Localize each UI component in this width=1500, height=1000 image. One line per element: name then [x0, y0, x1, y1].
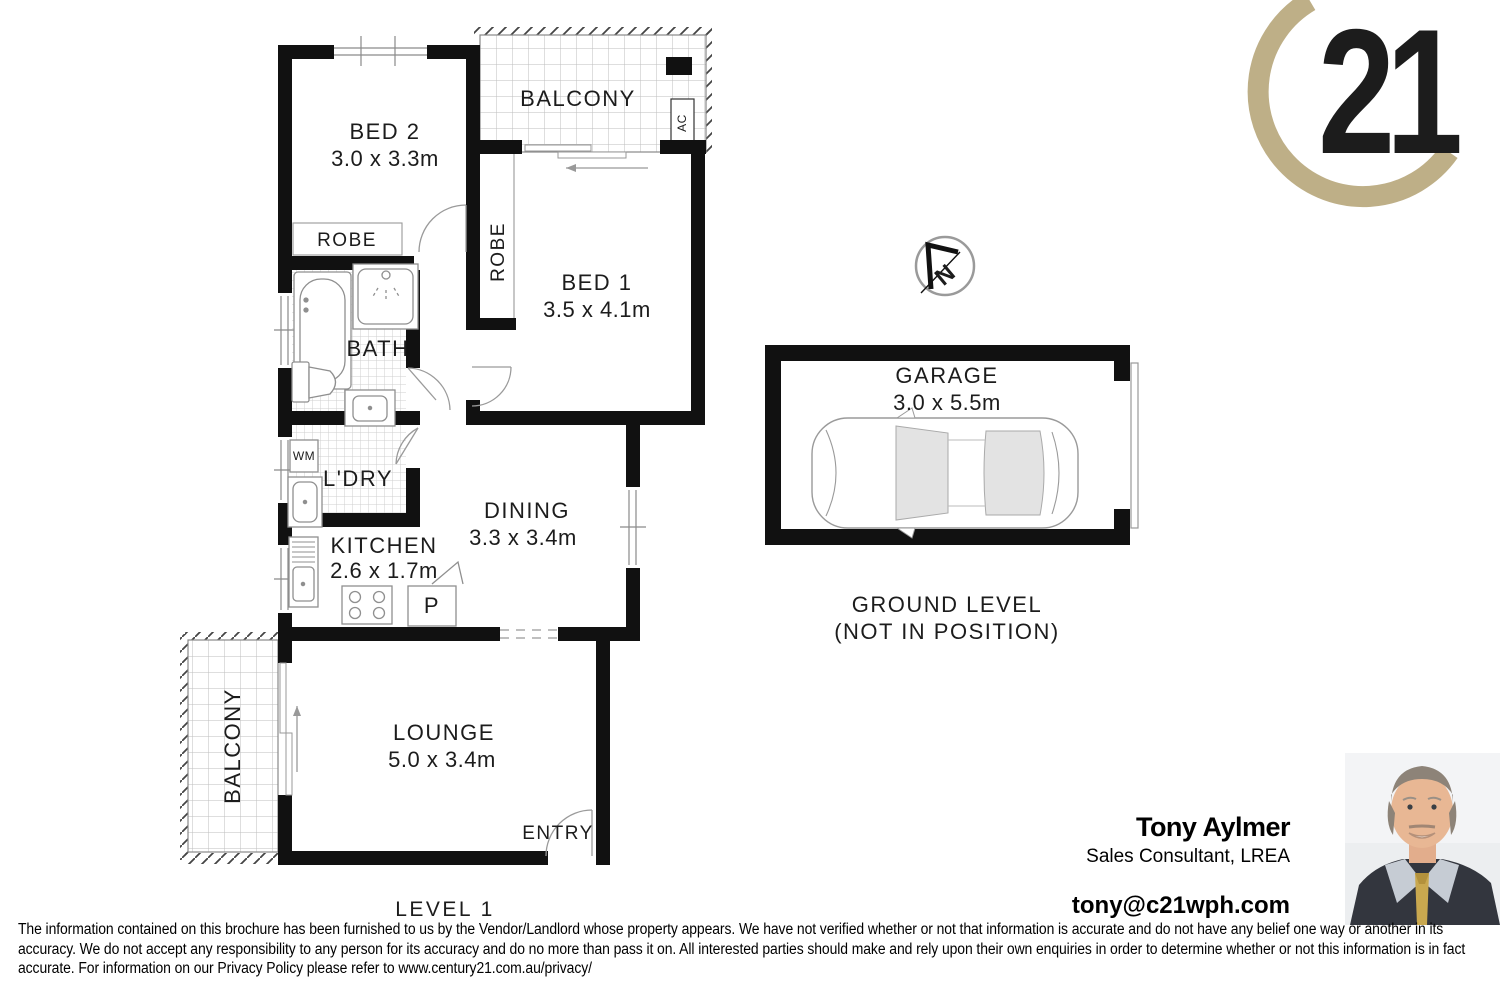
dining-dims: 3.3 x 3.4m	[469, 525, 577, 550]
logo-number: 21	[1318, 0, 1460, 191]
bed2-dims: 3.0 x 3.3m	[331, 146, 439, 171]
bed1-dims: 3.5 x 4.1m	[543, 297, 651, 322]
century21-logo: 21	[1240, 0, 1500, 230]
garage: GARAGE 3.0 x 5.5m GROUND LEVEL (NOT IN P…	[765, 345, 1138, 644]
agent-photo	[1345, 753, 1500, 925]
brochure-page: AC BALCONY BALCONY	[0, 0, 1500, 1000]
garage-label: GARAGE	[895, 363, 998, 388]
laundry-tub	[288, 477, 322, 527]
disclaimer-text: The information contained on this brochu…	[18, 920, 1494, 979]
vanity-basin	[345, 390, 395, 426]
lounge-label: LOUNGE	[393, 720, 495, 745]
ac-unit-block	[666, 57, 692, 75]
ground-level-line1: GROUND LEVEL	[852, 592, 1042, 617]
bed2-label: BED 2	[349, 119, 420, 144]
kitchen-dims: 2.6 x 1.7m	[330, 558, 438, 583]
garage-dims: 3.0 x 5.5m	[893, 390, 1001, 415]
balcony-top: AC BALCONY	[474, 27, 712, 154]
robe-bed1-label: ROBE	[488, 222, 509, 282]
ground-level-line2: (NOT IN POSITION)	[834, 619, 1060, 644]
laundry-label: L'DRY	[323, 466, 393, 491]
car-top-view	[812, 408, 1078, 538]
balcony-left: BALCONY	[180, 632, 281, 864]
stove-cooktop	[342, 586, 392, 624]
kitchen-label: KITCHEN	[330, 533, 437, 558]
dashed-opening	[500, 630, 558, 638]
balcony-top-label: BALCONY	[520, 86, 636, 111]
entry-label: ENTRY	[522, 823, 594, 844]
slide-arrow-left	[566, 164, 576, 172]
compass: N	[916, 237, 974, 295]
garage-door	[1131, 363, 1138, 528]
agent-block: Tony Aylmer Sales Consultant, LREA tony@…	[950, 812, 1290, 920]
lounge-dims: 5.0 x 3.4m	[388, 747, 496, 772]
slide-arrow-up	[293, 706, 301, 716]
bath-label: BATH	[346, 336, 409, 361]
balcony-left-hatch-bottom	[185, 853, 281, 864]
agent-name: Tony Aylmer	[950, 812, 1290, 843]
door-bath	[408, 368, 450, 410]
sliding-door-lounge-balcony	[280, 663, 301, 795]
wm-label: WM	[293, 449, 315, 463]
robe-bed2-label: ROBE	[317, 230, 377, 251]
pantry-label: P	[424, 593, 440, 618]
level-label: LEVEL 1	[395, 898, 495, 921]
agent-title: Sales Consultant, LREA	[950, 846, 1290, 868]
dining-label: DINING	[484, 498, 570, 523]
bed1-label: BED 1	[561, 270, 632, 295]
kitchen-sink	[289, 537, 318, 607]
window-dining	[620, 490, 646, 565]
door-bed2	[419, 205, 466, 252]
agent-email: tony@c21wph.com	[950, 892, 1290, 920]
window-bed2	[334, 36, 427, 66]
balcony-left-label: BALCONY	[220, 688, 245, 804]
shower	[353, 264, 418, 329]
ac-label: AC	[675, 114, 689, 132]
